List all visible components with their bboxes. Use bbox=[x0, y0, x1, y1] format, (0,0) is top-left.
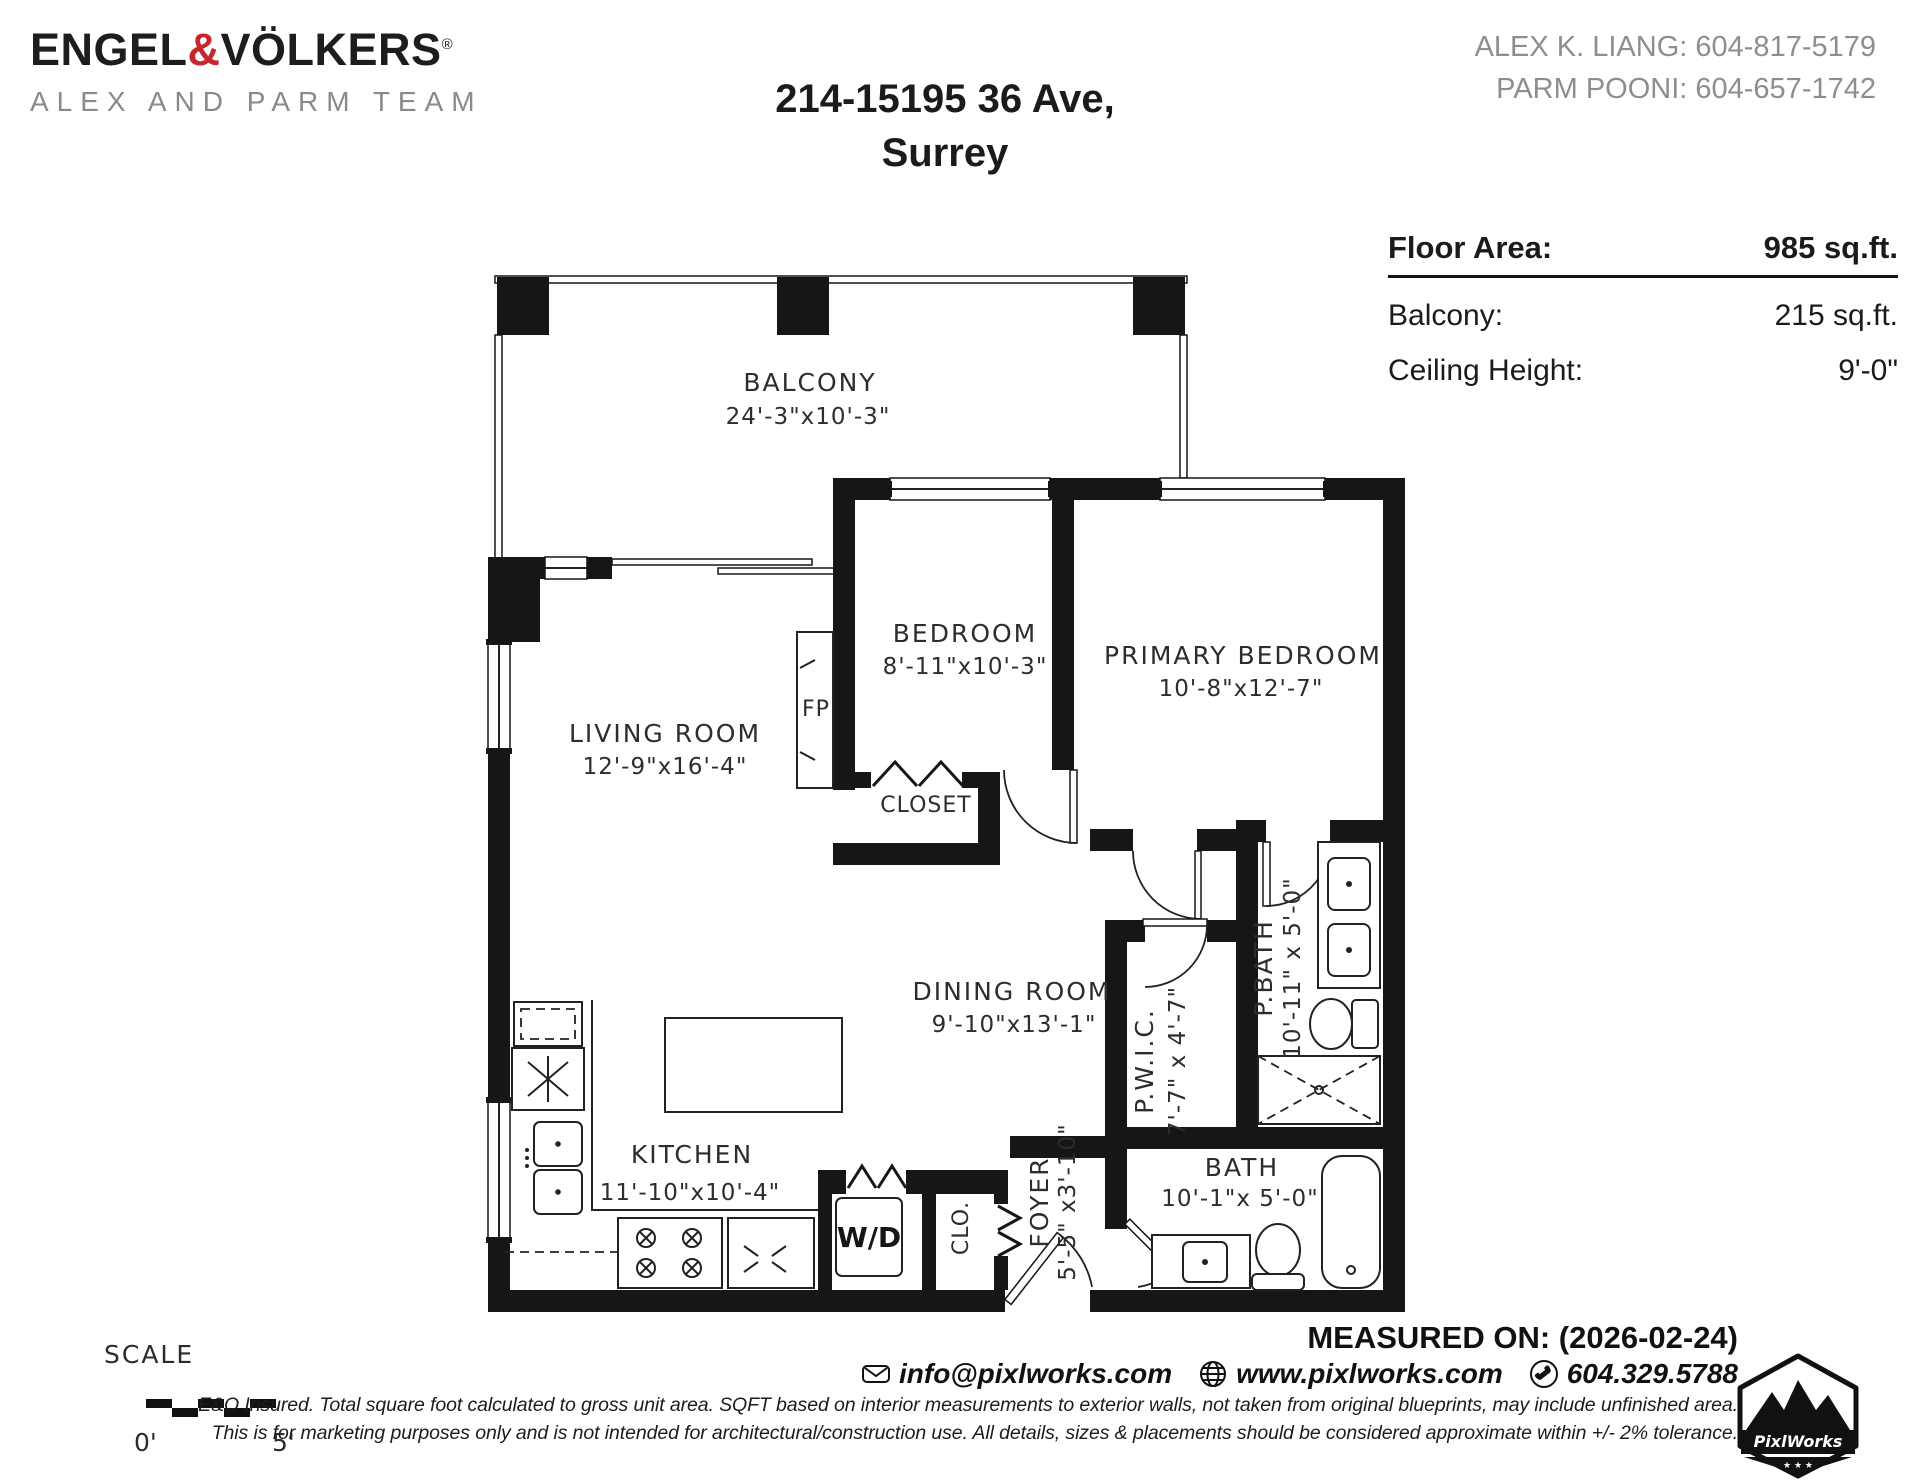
measured-on: MEASURED ON: (2026-02-24) bbox=[1307, 1320, 1738, 1356]
ceiling-height-row: Ceiling Height: 9'-0" bbox=[1388, 354, 1898, 388]
website-group: www.pixlworks.com bbox=[1198, 1358, 1503, 1390]
dining-room-label: DINING ROOM bbox=[912, 977, 1111, 1006]
bath-label: BATH bbox=[1205, 1153, 1279, 1182]
pbath-label: P.BATH bbox=[1249, 919, 1278, 1017]
clo-bifold-doors bbox=[998, 1206, 1020, 1256]
bedroom-window bbox=[886, 478, 1054, 500]
living-room-dims: 12'-9"x16'-4" bbox=[583, 754, 748, 780]
pixlworks-text: PixlWorks bbox=[1754, 1432, 1843, 1451]
primary-bedroom-label: PRIMARY BEDROOM bbox=[1104, 641, 1382, 670]
balcony-label: BALCONY bbox=[743, 368, 876, 397]
living-room-window bbox=[486, 639, 512, 754]
disclaimer-line2: This is for marketing purposes only and … bbox=[212, 1422, 1738, 1445]
listing-address: 214-15195 36 Ave, Surrey bbox=[560, 72, 1330, 180]
pwic-label: P.W.I.C. bbox=[1130, 1008, 1159, 1114]
balcony-column bbox=[1133, 277, 1185, 335]
balcony-side-window bbox=[545, 557, 587, 579]
kitchen-sink bbox=[525, 1122, 582, 1214]
foyer-dims: 5'-5" x3'-10" bbox=[1055, 1123, 1081, 1281]
double-vanity bbox=[1318, 842, 1380, 988]
wd-bifold-doors bbox=[848, 1166, 906, 1188]
pwic-door bbox=[1143, 919, 1207, 987]
floor-plan: FP bbox=[440, 250, 1440, 1340]
pbath-toilet bbox=[1310, 999, 1378, 1049]
phone-group: 604.329.5788 bbox=[1529, 1358, 1738, 1390]
fireplace-label: FP bbox=[802, 697, 830, 722]
brokerage-logo-text: ENGEL&VÖLKERS® bbox=[30, 24, 483, 76]
floor-area-row: Floor Area: 985 sq.ft. bbox=[1388, 230, 1898, 278]
envelope-icon bbox=[861, 1359, 891, 1389]
pwic-dims: 7'-7" x 4'-7" bbox=[1165, 986, 1191, 1136]
kitchen-dims: 11'-10"x10'-4" bbox=[600, 1180, 780, 1206]
floor-area-value: 985 sq.ft. bbox=[1764, 230, 1898, 266]
balcony-column bbox=[777, 277, 829, 335]
kitchen-island bbox=[665, 1018, 842, 1112]
address-line2: Surrey bbox=[560, 126, 1330, 180]
shower bbox=[1258, 1056, 1380, 1124]
dishwasher bbox=[728, 1218, 814, 1288]
kitchen-window bbox=[486, 1097, 512, 1243]
balcony-column bbox=[497, 277, 549, 335]
bath-toilet bbox=[1252, 1224, 1304, 1290]
email-group: info@pixlworks.com bbox=[861, 1358, 1172, 1390]
closet-label: CLOSET bbox=[880, 793, 971, 818]
sliding-door bbox=[612, 559, 835, 574]
dining-room-dims: 9'-10"x13'-1" bbox=[932, 1012, 1097, 1038]
agent2-phone: PARM POONI: 604-657-1742 bbox=[1475, 68, 1876, 110]
balcony-area-row: Balcony: 215 sq.ft. bbox=[1388, 299, 1898, 333]
fireplace: FP bbox=[797, 632, 833, 788]
globe-icon bbox=[1198, 1359, 1228, 1389]
primary-window bbox=[1156, 478, 1329, 500]
scale-start: 0' bbox=[134, 1428, 157, 1457]
kitchen-label: KITCHEN bbox=[631, 1140, 753, 1169]
disclaimer-line1: E&O Insured. Total square foot calculate… bbox=[198, 1394, 1738, 1417]
balcony-area-value: 215 sq.ft. bbox=[1775, 299, 1898, 333]
brokerage-logo: ENGEL&VÖLKERS® ALEX AND PARM TEAM bbox=[30, 24, 483, 118]
phone-icon bbox=[1529, 1359, 1559, 1389]
bedroom-label: BEDROOM bbox=[893, 619, 1038, 648]
bedroom-door bbox=[1004, 770, 1077, 843]
bath-vanity bbox=[1152, 1235, 1250, 1288]
email-text: info@pixlworks.com bbox=[899, 1358, 1172, 1390]
bathtub bbox=[1322, 1156, 1380, 1288]
bedroom-dims: 8'-11"x10'-3" bbox=[883, 654, 1048, 680]
phone-text: 604.329.5788 bbox=[1567, 1358, 1738, 1390]
primary-door bbox=[1133, 851, 1201, 919]
address-line1: 214-15195 36 Ave, bbox=[560, 72, 1330, 126]
contact-row: info@pixlworks.com www.pixlworks.com 604… bbox=[861, 1358, 1738, 1390]
agent1-phone: ALEX K. LIANG: 604-817-5179 bbox=[1475, 26, 1876, 68]
clo-label: CLO. bbox=[949, 1201, 974, 1255]
corner-cabinet bbox=[512, 1048, 584, 1110]
stove bbox=[618, 1218, 722, 1288]
scale-label: SCALE bbox=[104, 1340, 194, 1369]
bath-dims: 10'-1"x 5'-0" bbox=[1161, 1186, 1319, 1212]
registered-mark: ® bbox=[442, 36, 454, 53]
laundry: W/D bbox=[836, 1198, 902, 1276]
closet-bifold-doors bbox=[873, 762, 963, 786]
living-room-label: LIVING ROOM bbox=[569, 719, 761, 748]
pixlworks-logo: PixlWorks ★ ★ ★ bbox=[1728, 1350, 1868, 1484]
washer-dryer-label: W/D bbox=[837, 1221, 901, 1254]
team-name: ALEX AND PARM TEAM bbox=[30, 86, 483, 118]
primary-bedroom-dims: 10'-8"x12'-7" bbox=[1159, 676, 1324, 702]
pixlworks-stars: ★ ★ ★ bbox=[1783, 1461, 1813, 1471]
foyer-label: FOYER bbox=[1025, 1156, 1054, 1247]
agent-contacts: ALEX K. LIANG: 604-817-5179 PARM POONI: … bbox=[1475, 26, 1876, 110]
logo-ampersand: & bbox=[188, 24, 221, 75]
area-summary: Floor Area: 985 sq.ft. Balcony: 215 sq.f… bbox=[1388, 230, 1898, 388]
pbath-dims: 10'-11" x 5'-0" bbox=[1280, 877, 1306, 1058]
website-text: www.pixlworks.com bbox=[1236, 1358, 1503, 1390]
ceiling-height-value: 9'-0" bbox=[1838, 354, 1898, 388]
balcony-dims: 24'-3"x10'-3" bbox=[726, 404, 891, 430]
